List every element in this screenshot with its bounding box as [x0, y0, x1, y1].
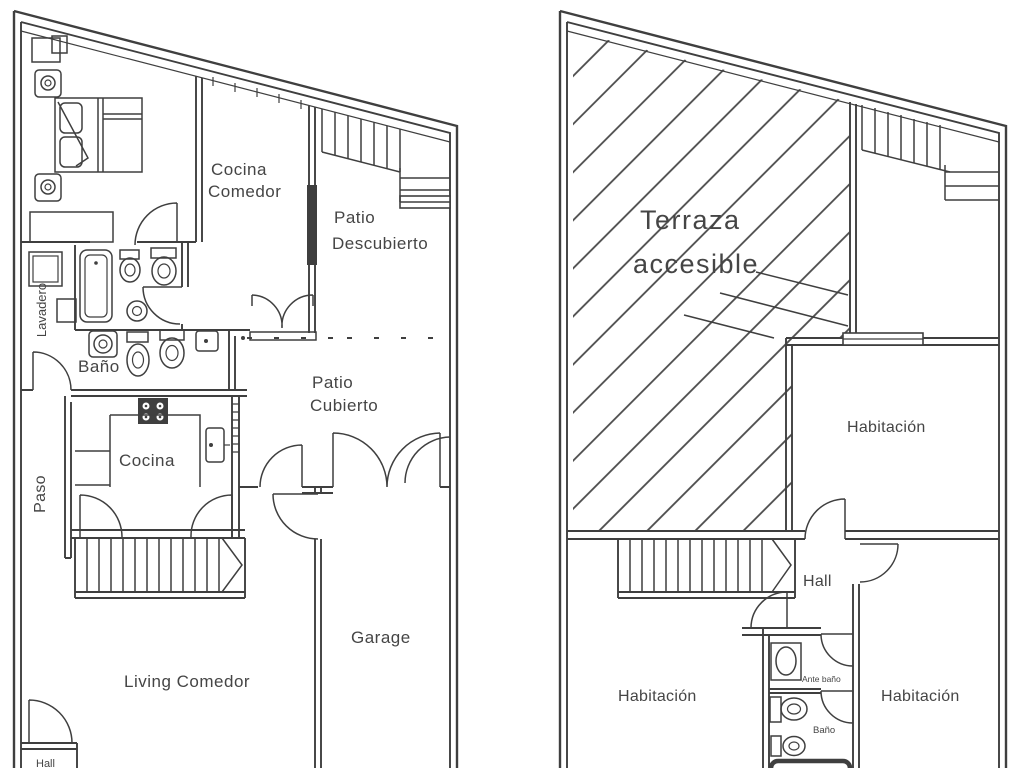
bidet [127, 344, 149, 376]
room-label-hall-upper: Hall [803, 573, 832, 590]
room-label-habitacion-top: Habitación [847, 419, 926, 436]
door-ante-banio [821, 634, 853, 666]
stair-direction-arrow [222, 538, 242, 592]
room-label-cocina-comedor: Cocina [211, 160, 267, 179]
room-label-hall-ground: Hall [36, 758, 55, 768]
ground-staircase [75, 538, 245, 598]
washing-machine [29, 252, 62, 286]
room-label-cocina-comedor-2: Comedor [208, 182, 281, 201]
stair-direction-arrow [772, 539, 791, 592]
room-label-patio-cubierto-2: Cubierto [310, 396, 378, 415]
door-paso-banio [33, 352, 71, 390]
floor-plan-page: Cocina Comedor Patio Descubierto Lavader… [0, 0, 1024, 768]
door-banio [821, 691, 853, 723]
ground-floor-plan: Cocina Comedor Patio Descubierto Lavader… [14, 11, 457, 768]
room-label-habitacion-right: Habitación [881, 688, 960, 705]
pillow [60, 103, 82, 133]
toilet [152, 257, 176, 285]
kitchen-fixtures [75, 398, 230, 487]
upper-staircase [618, 539, 795, 598]
room-label-banio: Baño [78, 357, 120, 376]
room-label-patio-descubierto-2: Descubierto [332, 234, 428, 253]
room-label-patio-descubierto: Patio [334, 208, 375, 227]
bathtub [771, 761, 850, 768]
bidet [120, 258, 140, 282]
floor-plan-drawing: Cocina Comedor Patio Descubierto Lavader… [0, 0, 1024, 768]
dresser [30, 212, 113, 242]
door-habitacion-right [860, 544, 898, 582]
room-label-paso: Paso [32, 475, 49, 513]
door-bedroom [135, 203, 177, 245]
bidet [783, 737, 805, 756]
double-door-comedor-patio [252, 295, 313, 328]
ground-floor-labels: Cocina Comedor Patio Descubierto Lavader… [32, 160, 428, 768]
room-label-banio-upper: Baño [813, 725, 835, 736]
door-garage [273, 494, 318, 539]
terraza-hatch [573, 31, 850, 530]
stove [138, 398, 168, 424]
bathroom-fixtures-upper [80, 248, 176, 322]
toilet [781, 698, 807, 720]
room-label-living-comedor: Living Comedor [124, 672, 250, 691]
washbasin [127, 301, 147, 321]
room-label-terraza: Terraza [640, 205, 741, 235]
room-label-cocina: Cocina [119, 451, 175, 470]
door-entrance [29, 700, 72, 743]
ground-interior-walls [21, 76, 451, 768]
kitchen-sink [206, 428, 224, 462]
room-label-garage: Garage [351, 628, 411, 647]
washbasin [94, 335, 112, 353]
ground-exterior-stairs [322, 109, 450, 202]
room-label-ante-banio: Ante baño [802, 674, 841, 684]
nightstand [35, 174, 61, 201]
door-patio-exterior [405, 437, 450, 483]
door-bathroom [143, 287, 182, 324]
bedroom-furniture [30, 36, 142, 242]
room-label-patio-cubierto: Patio [312, 373, 353, 392]
room-label-habitacion-left: Habitación [618, 688, 697, 705]
toilet [160, 338, 184, 368]
room-label-lavadero: Lavadero [34, 283, 49, 337]
nightstand [35, 70, 61, 97]
room-label-terraza-2: accesible [633, 249, 759, 279]
blanket-fold [58, 102, 88, 166]
door-patio-single [260, 445, 302, 487]
upper-floor-plan: Terraza accesible Habitación Hall Habita… [560, 11, 1006, 768]
double-door-patio-garage [333, 433, 440, 487]
door-habitacion-top [805, 499, 845, 539]
